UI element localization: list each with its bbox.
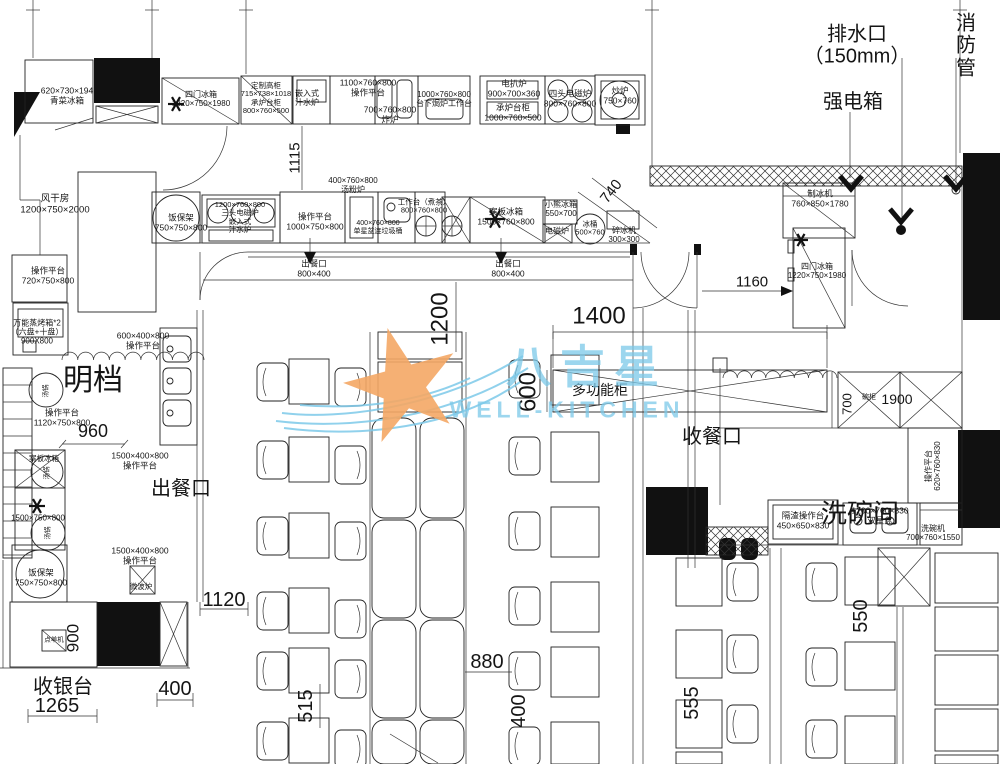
circle-fixture [231, 203, 251, 223]
equipment-outline [908, 428, 962, 503]
equipment-outline [607, 211, 639, 229]
chair-back [357, 665, 360, 693]
equipment-outline [935, 755, 998, 764]
circle-fixture [612, 93, 626, 107]
chair [727, 563, 758, 601]
chair-back [515, 732, 518, 760]
circle-fixture [167, 378, 173, 384]
equipment-outline [297, 80, 326, 102]
chair-back [733, 710, 736, 738]
line [793, 228, 845, 328]
equipment-outline [209, 230, 273, 241]
equipment-outline [935, 655, 998, 705]
chair-back [263, 446, 266, 474]
equipment-outline [595, 75, 645, 125]
equipment-outline [935, 607, 998, 651]
equipment-outline [330, 76, 375, 124]
long-table [372, 520, 416, 618]
equipment-outline [768, 500, 838, 544]
chair-back [357, 735, 360, 763]
circle-fixture [167, 410, 173, 416]
chair-back [733, 640, 736, 668]
equipment-outline [289, 588, 329, 633]
wall-black [694, 244, 701, 255]
equipment-outline [773, 505, 833, 539]
equipment-outline [551, 507, 599, 557]
equipment-outline [12, 255, 67, 302]
equipment-outline [25, 60, 93, 123]
watermark-en-text: WELL-KITCHEN [449, 397, 684, 424]
direction-arrow [781, 286, 793, 296]
equipment-outline [601, 81, 639, 119]
chair [257, 441, 288, 479]
equipment-outline [551, 722, 599, 764]
chair [509, 652, 540, 690]
equipment-outline [845, 557, 895, 605]
chair-back [263, 368, 266, 396]
watermark-graphics [276, 328, 528, 442]
equipment-outline [280, 192, 345, 243]
equipment-outline [152, 192, 200, 243]
chair [509, 437, 540, 475]
chair-back [515, 517, 518, 545]
equipment-outline [551, 582, 599, 632]
rounded-fixture [426, 99, 463, 119]
circle-fixture [572, 80, 592, 100]
chair [727, 635, 758, 673]
chair [257, 363, 288, 401]
equipment-outline [13, 303, 68, 355]
leader-chevron [890, 209, 912, 222]
direction-arrow [304, 252, 316, 264]
equipment-outline [676, 752, 722, 764]
wall-triangle [14, 92, 40, 137]
long-table [372, 720, 416, 764]
circle-fixture [886, 517, 894, 525]
chair [335, 446, 366, 484]
chair [509, 587, 540, 625]
circle-fixture [167, 346, 173, 352]
equipment-outline [289, 718, 329, 763]
wall-black [97, 602, 160, 666]
equipment-outline [545, 76, 595, 124]
wall-black [616, 124, 630, 134]
chair-back [357, 527, 360, 555]
chair [257, 517, 288, 555]
chair [727, 705, 758, 743]
circle-fixture [600, 81, 638, 119]
equipment-outline [845, 716, 895, 764]
door-arc [200, 252, 248, 300]
chair [335, 600, 366, 638]
equipment-outline [350, 197, 373, 238]
chair-back [263, 657, 266, 685]
equipment-outline [487, 102, 538, 117]
equipment-outline [293, 76, 330, 124]
circle-fixture [854, 517, 862, 525]
chair [806, 720, 837, 758]
long-table [372, 620, 416, 718]
equipment-outline [551, 647, 599, 697]
equipment-outline [543, 200, 577, 224]
chair [257, 652, 288, 690]
long-table [420, 520, 464, 618]
chair [257, 722, 288, 760]
wall-hatch-fill [706, 527, 768, 555]
circle-fixture [153, 195, 199, 241]
circle-fixture [572, 102, 592, 122]
equipment-outline [18, 309, 63, 337]
direction-arrow [495, 252, 507, 264]
chair [806, 648, 837, 686]
chair-back [812, 725, 815, 753]
watermark-cn-text: 八吉星 [506, 331, 668, 396]
circle-fixture [208, 203, 228, 223]
equipment-outline [10, 602, 97, 667]
wavy-counter-edge [62, 352, 204, 360]
chair-back [263, 727, 266, 755]
chair-back [263, 522, 266, 550]
chair-back [357, 605, 360, 633]
chair [335, 730, 366, 764]
equipment-outline [23, 341, 36, 352]
chair-back [515, 592, 518, 620]
equipment-outline [378, 192, 415, 243]
chair [335, 522, 366, 560]
equipment-outline [676, 630, 722, 678]
chair-back [515, 442, 518, 470]
circle-fixture [575, 214, 605, 244]
chair-back [812, 653, 815, 681]
long-table [420, 620, 464, 718]
equipment-outline [289, 437, 329, 482]
diag-line [470, 197, 545, 243]
door-arc [163, 126, 227, 190]
chair [509, 727, 540, 764]
circle-fixture [29, 373, 63, 407]
equipment-outline [487, 81, 538, 99]
chair [257, 592, 288, 630]
long-table [372, 418, 416, 518]
chair-back [357, 451, 360, 479]
equipment-outline [935, 553, 998, 603]
rounded-fixture [397, 80, 412, 118]
shelf-rack [3, 368, 32, 558]
equipment-outline [920, 503, 962, 545]
equipment-outline [78, 172, 156, 312]
long-table [420, 418, 464, 518]
wall-black [646, 487, 708, 555]
wall-black [94, 58, 160, 103]
long-table [420, 720, 464, 764]
chair [509, 512, 540, 550]
circle-fixture [16, 550, 64, 598]
kitchen-floor-plan: 排水口（150mm）消防管强电箱明档出餐口收餐口洗碗间收银台多功能柜620×73… [0, 0, 1000, 764]
equipment-outline [289, 648, 329, 693]
equipment-outline [935, 709, 998, 751]
equipment-outline [845, 642, 895, 690]
chair [335, 660, 366, 698]
chair-back [263, 597, 266, 625]
equipment-outline [551, 432, 599, 482]
equipment-outline [676, 558, 722, 606]
circle-fixture [387, 203, 395, 211]
equipment-outline [202, 195, 280, 243]
drain-point [896, 225, 906, 235]
circle-fixture [548, 80, 568, 100]
wall-black [630, 244, 637, 255]
diag-line [55, 118, 93, 130]
circle-fixture [254, 203, 274, 223]
rounded-fixture [377, 80, 392, 118]
diag-line [241, 76, 292, 124]
chair [806, 563, 837, 601]
door-arc [852, 250, 908, 306]
equipment-outline [676, 700, 722, 748]
equipment-outline [12, 545, 67, 602]
equipment-outline [289, 359, 329, 404]
diag-line [592, 178, 657, 228]
wall-black [958, 430, 1000, 528]
chair-back [733, 568, 736, 596]
circle-fixture [548, 102, 568, 122]
equipment-outline [289, 513, 329, 558]
chair-back [812, 568, 815, 596]
chair-back [515, 657, 518, 685]
watermark-star [343, 328, 453, 442]
plan-drawing [0, 0, 1000, 764]
line [42, 630, 66, 651]
wall-black [963, 153, 1000, 320]
